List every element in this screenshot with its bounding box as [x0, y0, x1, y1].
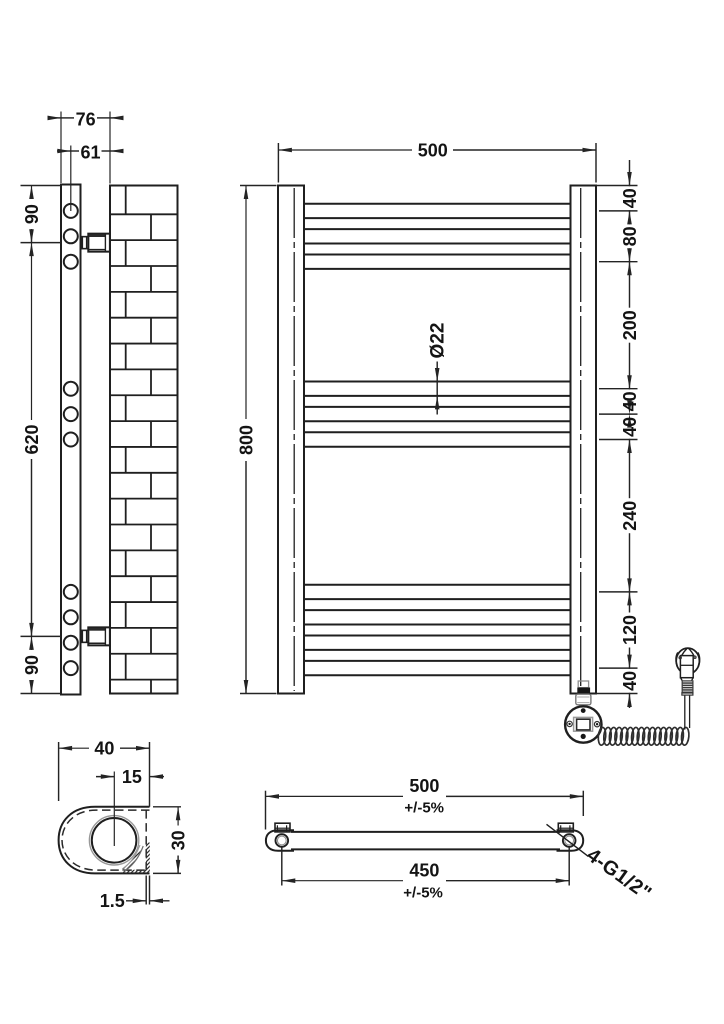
- svg-text:40: 40: [620, 417, 640, 437]
- svg-text:40: 40: [94, 739, 114, 759]
- svg-text:620: 620: [22, 424, 42, 454]
- svg-text:Ø22: Ø22: [428, 323, 449, 359]
- svg-text:90: 90: [22, 655, 42, 675]
- svg-text:61: 61: [80, 142, 100, 162]
- svg-text:+/-5%: +/-5%: [403, 885, 443, 902]
- svg-text:90: 90: [22, 204, 42, 224]
- svg-text:+/-5%: +/-5%: [404, 800, 444, 817]
- svg-text:500: 500: [409, 776, 439, 796]
- svg-text:1.5: 1.5: [100, 891, 125, 911]
- svg-text:80: 80: [620, 226, 640, 246]
- svg-text:450: 450: [409, 860, 439, 880]
- svg-text:500: 500: [418, 141, 448, 161]
- svg-text:40: 40: [620, 188, 640, 208]
- svg-text:240: 240: [620, 501, 640, 531]
- svg-text:120: 120: [620, 615, 640, 645]
- svg-text:40: 40: [620, 391, 640, 411]
- svg-text:800: 800: [236, 425, 256, 455]
- svg-text:15: 15: [122, 767, 142, 787]
- svg-text:40: 40: [620, 671, 640, 691]
- svg-text:200: 200: [620, 310, 640, 340]
- svg-text:76: 76: [76, 109, 96, 129]
- svg-text:30: 30: [169, 830, 189, 850]
